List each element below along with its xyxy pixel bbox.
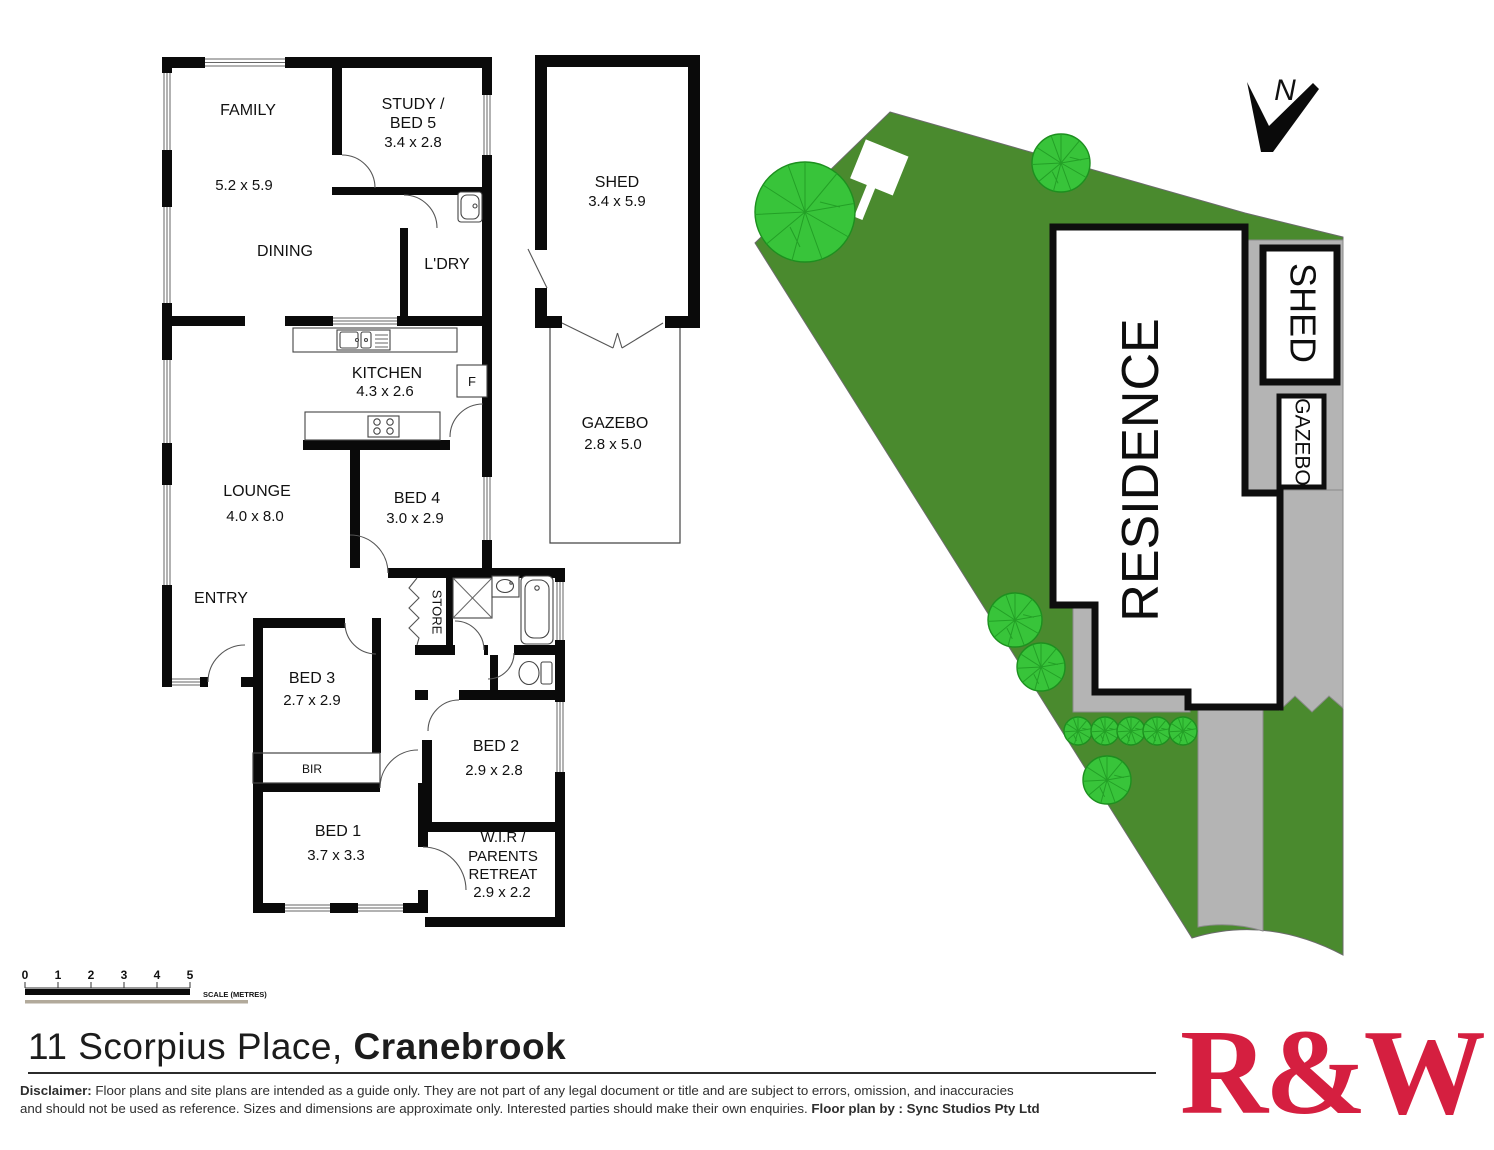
study-label-2: BED 5 <box>390 115 436 132</box>
study-dims: 3.4 x 2.8 <box>384 134 442 151</box>
floor-plan: FAMILY 5.2 x 5.9 DINING STUDY / BED 5 3.… <box>162 55 700 927</box>
bed2-dims: 2.9 x 2.8 <box>465 762 523 779</box>
kitchen-cooktop <box>305 412 440 440</box>
scale-tick-1: 1 <box>55 968 62 982</box>
scale-tick-3: 3 <box>121 968 128 982</box>
bed2-label: BED 2 <box>473 738 519 755</box>
site-residence-label: RESIDENCE <box>1112 318 1170 621</box>
scale-underline <box>25 1000 248 1004</box>
shed-label: SHED <box>595 174 639 191</box>
kitchen-bench-sink <box>293 328 457 352</box>
scale-tick-2: 2 <box>88 968 95 982</box>
kitchen-label: KITCHEN <box>352 365 422 382</box>
site-rear-path <box>1280 490 1343 712</box>
bed3-label: BED 3 <box>289 670 335 687</box>
lounge-dims: 4.0 x 8.0 <box>226 508 284 525</box>
lounge-label: LOUNGE <box>223 483 291 500</box>
study-label-1: STUDY / <box>382 96 445 113</box>
bed4-label: BED 4 <box>394 490 440 507</box>
family-dims: 5.2 x 5.9 <box>215 177 273 194</box>
shed-dims: 3.4 x 5.9 <box>588 193 646 210</box>
scale-tick-4: 4 <box>154 968 161 982</box>
disclaimer-label: Disclaimer: <box>20 1083 92 1098</box>
bed1-dims: 3.7 x 3.3 <box>307 847 365 864</box>
gazebo-label: GAZEBO <box>582 415 649 432</box>
laundry-tub <box>458 192 482 222</box>
disclaimer-text: Disclaimer: Floor plans and site plans a… <box>20 1082 1170 1119</box>
scale-caption: SCALE (METRES) <box>203 990 267 999</box>
scale-bar-rule <box>25 989 190 995</box>
address-divider <box>28 1072 1156 1074</box>
toilet <box>519 662 552 685</box>
store-label: STORE <box>430 590 445 635</box>
property-address: 11 Scorpius Place, Cranebrook <box>28 1026 566 1068</box>
bed3-dims: 2.7 x 2.9 <box>283 692 341 709</box>
entry-label: ENTRY <box>194 590 248 607</box>
scale-tick-5: 5 <box>187 968 194 982</box>
address-suburb: Cranebrook <box>354 1026 567 1067</box>
site-plan: RESIDENCE SHED GAZEBO N <box>755 74 1343 955</box>
site-shed-label: SHED <box>1282 263 1323 363</box>
floorplan-sheet: RESIDENCE SHED GAZEBO N <box>0 0 1494 1150</box>
bathtub <box>521 576 553 644</box>
floorplan-credit: Floor plan by : Sync Studios Pty Ltd <box>811 1101 1039 1116</box>
shower <box>453 578 492 618</box>
wir-dims: 2.9 x 2.2 <box>473 884 531 901</box>
bed4-dims: 3.0 x 2.9 <box>386 510 444 527</box>
dining-label: DINING <box>257 243 313 260</box>
site-gazebo-label: GAZEBO <box>1290 398 1313 486</box>
bir-label: BIR <box>302 762 322 776</box>
wir-label-3: RETREAT <box>469 866 538 883</box>
north-compass: N <box>1247 74 1319 152</box>
vanity-basin <box>492 576 519 597</box>
scale-bar: 0 1 2 3 4 5 SCALE (METRES) <box>22 968 268 1004</box>
disclaimer-line-1: Disclaimer: Floor plans and site plans a… <box>20 1082 1170 1100</box>
site-driveway <box>1198 702 1263 931</box>
bed1-label: BED 1 <box>315 823 361 840</box>
kitchen-dims: 4.3 x 2.6 <box>356 383 414 400</box>
wir-label-2: PARENTS <box>468 848 538 865</box>
scale-tick-0: 0 <box>22 968 29 982</box>
family-label: FAMILY <box>220 102 276 119</box>
address-street: 11 Scorpius Place, <box>28 1026 354 1067</box>
plans-svg: RESIDENCE SHED GAZEBO N <box>0 0 1494 1010</box>
wir-label-1: W.I.R / <box>481 829 527 846</box>
fridge-label: F <box>468 374 476 389</box>
gazebo-outline <box>550 323 680 543</box>
north-label: N <box>1274 74 1296 107</box>
disclaimer-line-2: and should not be used as reference. Siz… <box>20 1100 1170 1118</box>
gazebo-dims: 2.8 x 5.0 <box>584 436 642 453</box>
laundry-label: L'DRY <box>424 256 470 273</box>
agency-logo: R&W <box>1180 1012 1483 1134</box>
